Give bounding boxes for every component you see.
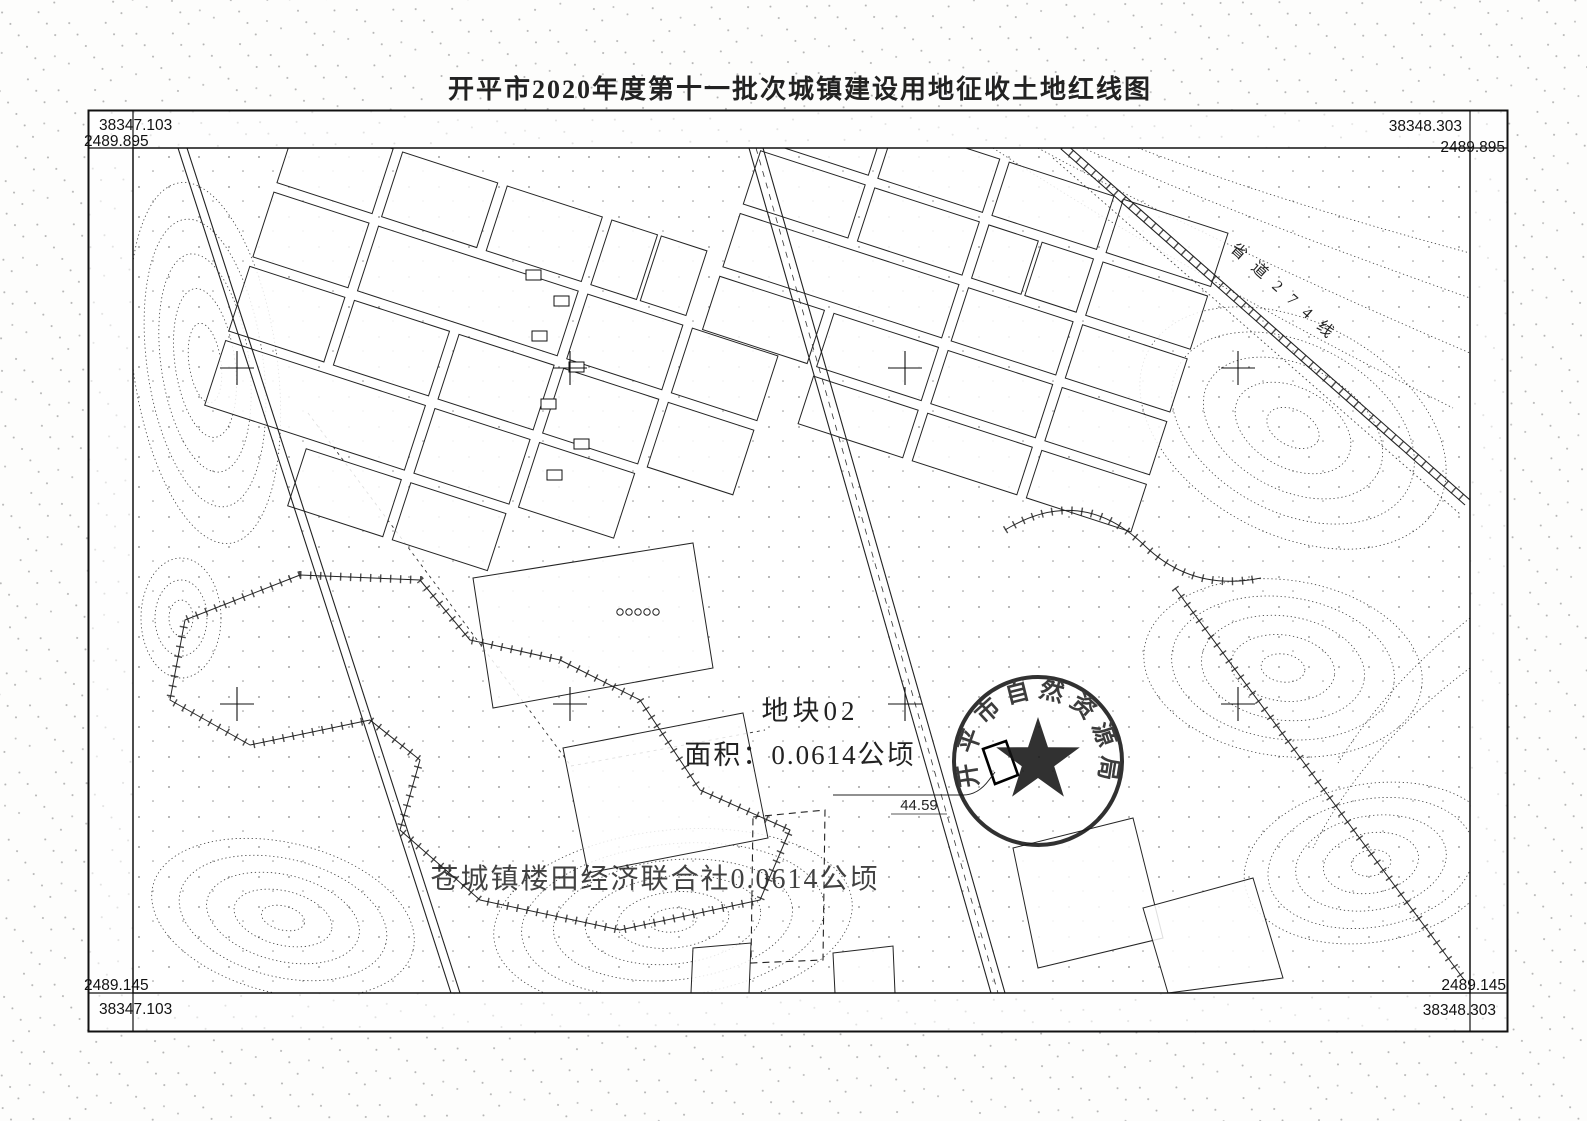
topo-map-content: 省道274线 44.59 地块02 面积：0.0614公顷 苍城镇楼田经济联合社…: [108, 88, 1510, 1028]
dimension-label: 44.59: [900, 797, 938, 814]
corner-coordinate-bottom-right-x: 38348.303: [1423, 1002, 1496, 1019]
corner-coordinate-top-left-y: 2489.895: [84, 133, 149, 150]
scanned-map-page: 开平市2020年度第十一批次城镇建设用地征收土地红线图: [0, 0, 1587, 1121]
owner-label: 苍城镇楼田经济联合社0.0614公顷: [430, 863, 879, 895]
corner-coordinate-top-left-x: 38347.103: [99, 117, 172, 134]
corner-coordinate-bottom-left-x: 38347.103: [99, 1001, 172, 1018]
corner-coordinate-top-right-y: 2489.895: [1440, 139, 1505, 156]
red-line-map-figure: 开平市2020年度第十一批次城镇建设用地征收土地红线图: [0, 0, 1587, 1121]
map-title: 开平市2020年度第十一批次城镇建设用地征收土地红线图: [448, 74, 1152, 104]
plot-label: 地块02: [762, 696, 859, 726]
corner-coordinate-bottom-right-y: 2489.145: [1441, 977, 1506, 994]
corner-coordinate-bottom-left-y: 2489.145: [84, 977, 149, 994]
area-label: 面积：0.0614公顷: [684, 740, 915, 770]
corner-coordinate-top-right-x: 38348.303: [1389, 118, 1462, 135]
